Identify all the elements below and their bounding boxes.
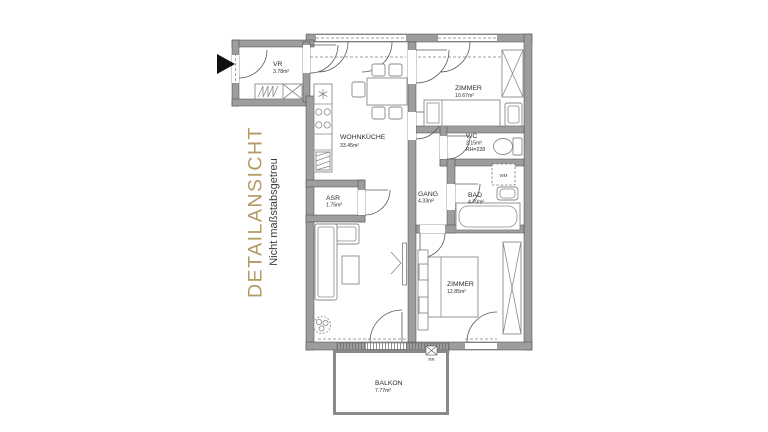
room-area: 4.70m² <box>468 200 484 206</box>
room-name: WOHNKÜCHE <box>340 133 386 141</box>
coffee-table <box>342 256 359 284</box>
wall-zimmer1-south <box>416 126 524 133</box>
chair <box>372 64 385 76</box>
room-area: 12.85m² <box>447 289 466 295</box>
plant-icon <box>314 317 331 334</box>
door-arc-vr-kitchen <box>310 45 338 73</box>
opening-vr-kitchen <box>303 45 310 73</box>
furniture: WM <box>255 50 523 334</box>
room-label-vr: VR 3.78m² <box>273 61 289 75</box>
zimmer2-wardrobe <box>503 242 521 334</box>
opening-wc <box>440 136 447 159</box>
chair <box>352 82 365 97</box>
opening-bad <box>447 184 455 210</box>
room-note: RH=228 <box>466 147 485 153</box>
room-label-wc: WC 2.15m² RH=228 <box>466 133 485 153</box>
wall-right <box>524 34 532 350</box>
chair <box>389 107 402 119</box>
rain-pipe-label: RR <box>428 357 434 362</box>
room-area: 33.45m² <box>340 143 359 149</box>
wall-left <box>306 96 314 350</box>
room-area: 4.33m² <box>418 199 434 205</box>
room-name: BALKON <box>375 380 403 387</box>
room-area: 10.67m² <box>455 93 474 99</box>
room-name: ZIMMER <box>455 85 482 92</box>
wall-vr-top <box>232 40 314 47</box>
toilet <box>494 138 523 155</box>
opening-gang <box>408 112 416 140</box>
room-area: 2.15m² <box>466 141 482 147</box>
room-name: WC <box>466 133 477 140</box>
wall-asr-bottom <box>306 215 365 222</box>
floorplan-drawing: WM <box>0 0 768 432</box>
room-name: ZIMMER <box>447 281 474 288</box>
opening-window-zimmer2 <box>465 342 497 350</box>
room-label-gang: GANG 4.33m² <box>418 191 438 205</box>
door-arc-entrance <box>239 50 267 78</box>
opening-zimmer2 <box>420 225 445 233</box>
balcony: RR <box>335 343 450 414</box>
kitchen-sink <box>316 152 330 170</box>
zimmer1-wardrobe <box>502 50 523 97</box>
floorplan-page: DETAILANSICHT Nicht maßstabsgetreu <box>0 0 768 432</box>
washing-machine-label: WM <box>500 173 508 178</box>
room-area: 3.78m² <box>273 69 289 75</box>
room-name: GANG <box>418 191 438 198</box>
dining-table <box>352 64 407 119</box>
opening-zimmer1 <box>408 50 416 84</box>
room-label-asr: ASR 1.75m² <box>326 195 342 209</box>
zimmer1-bed <box>424 100 500 126</box>
bathroom-sink <box>497 187 518 200</box>
wall-asr-top <box>306 180 365 187</box>
room-name: BAD <box>468 192 482 199</box>
kitchen-counter <box>314 84 332 172</box>
room-area: 7.77m² <box>375 388 391 394</box>
room-name: ASR <box>326 195 340 202</box>
door-arc-zimmer1 <box>416 50 449 83</box>
room-name: VR <box>273 61 283 68</box>
room-area: 1.75m² <box>326 203 342 209</box>
wall-vr-bottom <box>232 99 310 106</box>
zimmer1-nightstand <box>505 103 522 126</box>
room-label-zimmer1: ZIMMER 10.67m² <box>455 85 482 99</box>
tv <box>391 243 407 285</box>
vr-wardrobe <box>255 84 302 99</box>
washing-machine: WM <box>492 164 515 185</box>
door-arc-balcony <box>370 310 402 342</box>
opening-asr <box>358 190 365 215</box>
wall-center-vertical <box>408 42 416 342</box>
chair <box>389 64 402 76</box>
room-label-bad: BAD 4.70m² <box>468 192 484 206</box>
room-label-wohnkueche: WOHNKÜCHE 33.45m² <box>340 133 386 149</box>
door-arc-asr <box>365 190 390 215</box>
bathtub <box>456 203 520 230</box>
chair <box>372 107 385 119</box>
